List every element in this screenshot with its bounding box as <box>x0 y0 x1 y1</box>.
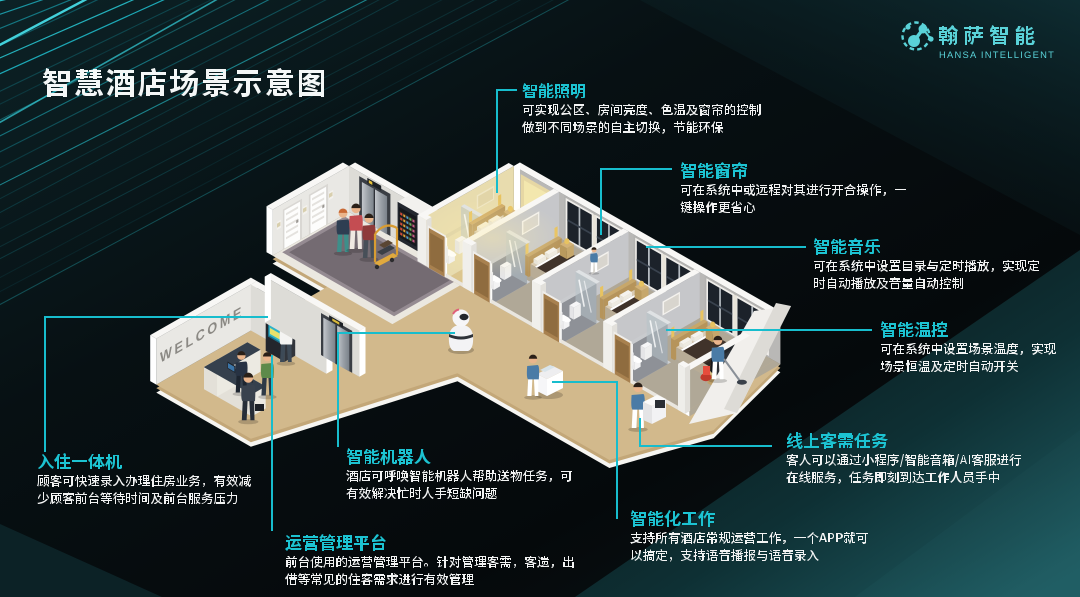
svg-text:HANSA INTELLIGENT: HANSA INTELLIGENT <box>939 49 1055 60</box>
